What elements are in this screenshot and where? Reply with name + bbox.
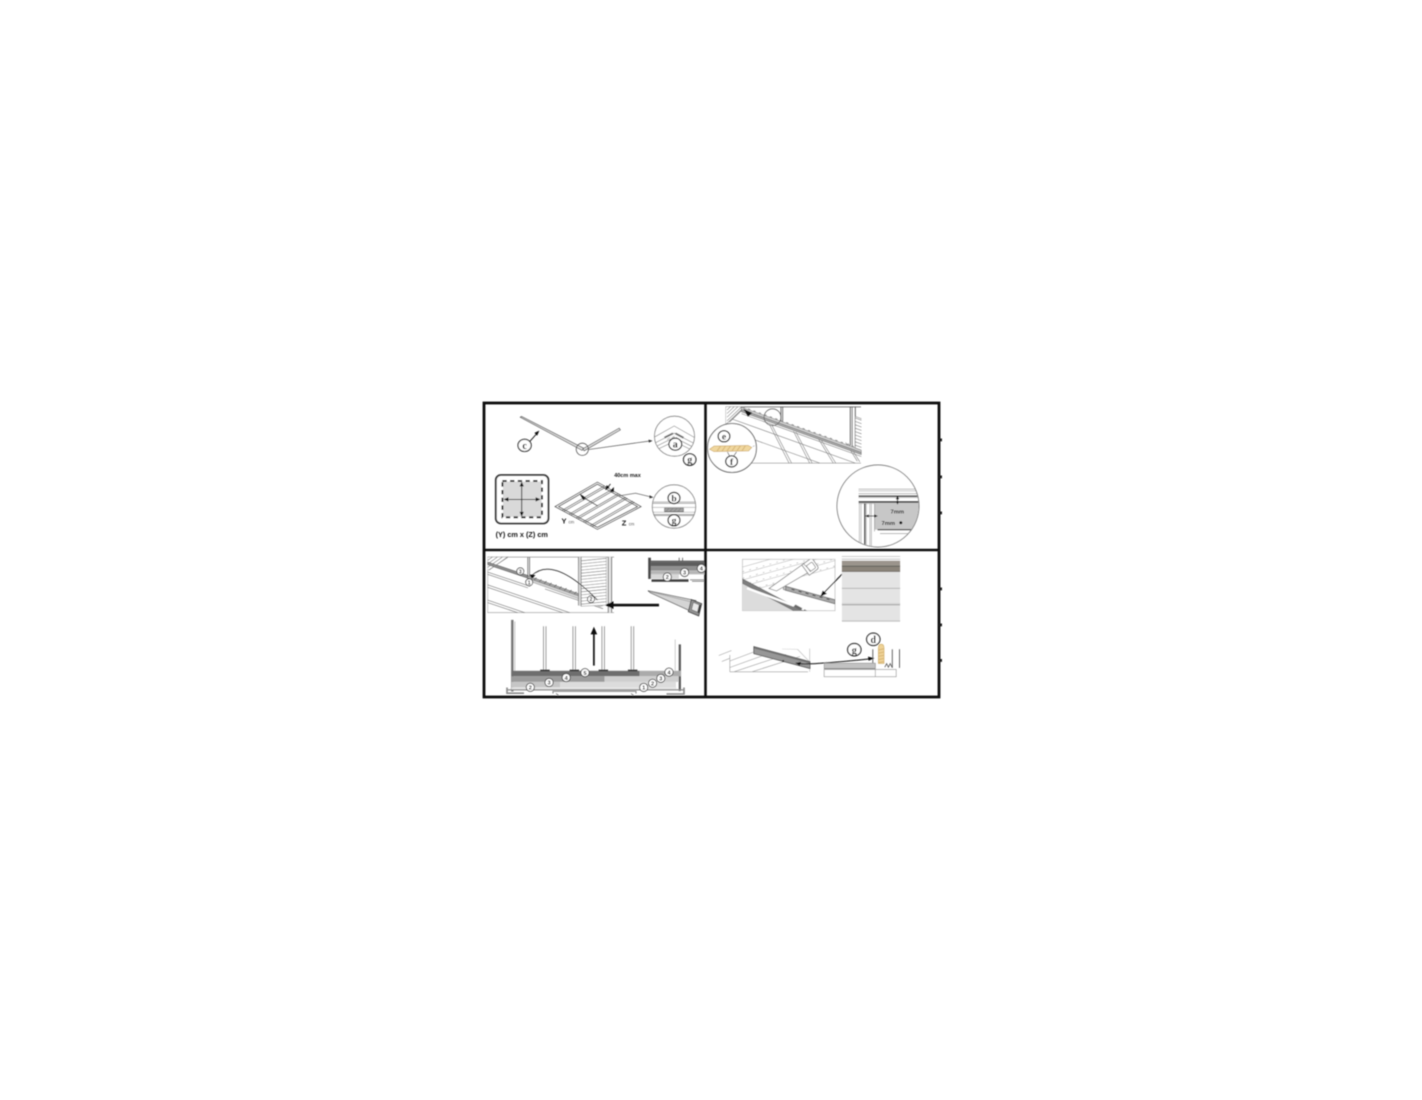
svg-text:2: 2	[529, 686, 532, 692]
svg-text:d: d	[871, 635, 877, 646]
svg-text:g: g	[672, 517, 677, 527]
svg-text:b: b	[671, 494, 676, 504]
svg-text:1: 1	[528, 580, 531, 586]
svg-text:2: 2	[590, 597, 593, 603]
svg-text:Y: Y	[562, 517, 567, 526]
svg-text:7mm: 7mm	[882, 521, 896, 527]
svg-text:g: g	[687, 455, 692, 466]
svg-text:3: 3	[519, 569, 522, 575]
svg-text:3: 3	[548, 681, 551, 687]
svg-text:5: 5	[583, 671, 586, 677]
svg-text:2: 2	[666, 575, 669, 581]
svg-text:g: g	[852, 645, 857, 656]
svg-text:7mm: 7mm	[891, 510, 905, 516]
svg-text:cm: cm	[569, 520, 575, 525]
svg-text:2: 2	[651, 682, 654, 688]
svg-text:c: c	[522, 441, 527, 452]
svg-text:e: e	[722, 433, 726, 443]
svg-text:(Y) cm x (Z) cm: (Y) cm x (Z) cm	[496, 530, 549, 539]
svg-text:a: a	[673, 440, 678, 451]
svg-text:3: 3	[683, 571, 686, 577]
svg-text:Z: Z	[622, 519, 627, 528]
svg-text:cm: cm	[629, 522, 635, 527]
svg-text:3: 3	[659, 677, 662, 683]
svg-text:40cm max: 40cm max	[614, 473, 642, 479]
svg-text:1: 1	[642, 686, 645, 692]
